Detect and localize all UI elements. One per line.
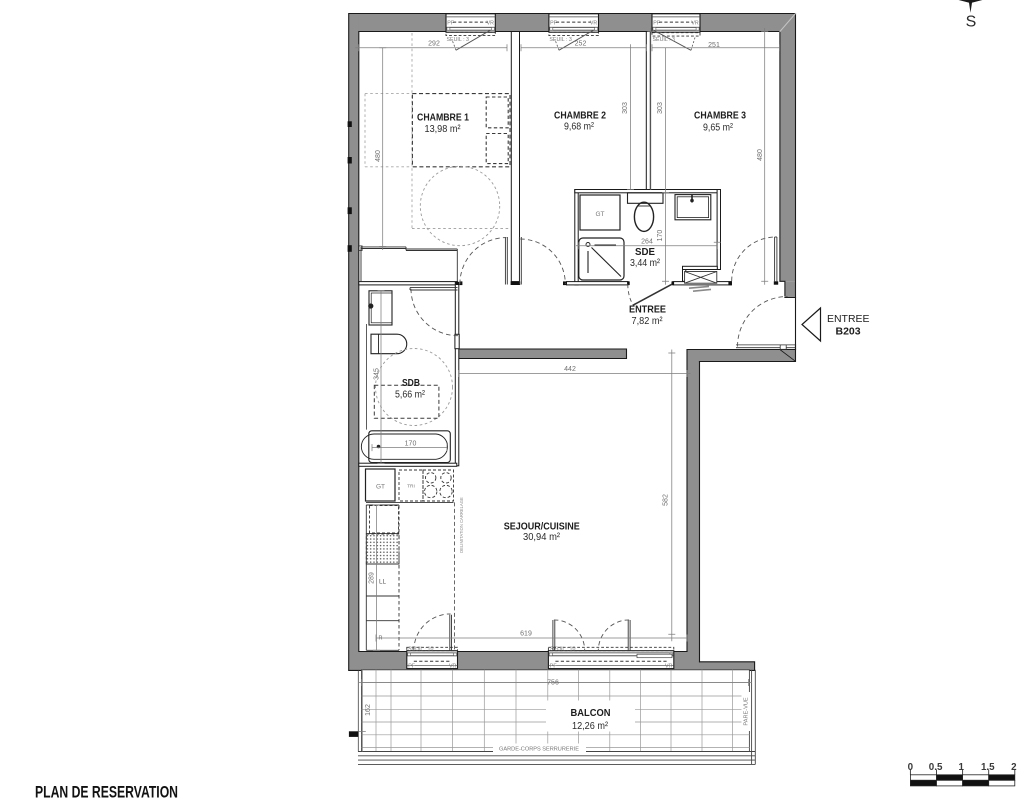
- svg-text:SEUIL : 10: SEUIL : 10: [408, 646, 433, 652]
- svg-text:PF: PF: [447, 20, 455, 26]
- svg-text:170: 170: [405, 440, 417, 447]
- svg-text:SDB: SDB: [402, 377, 420, 389]
- svg-text:BALCON: BALCON: [571, 707, 611, 719]
- svg-text:GARDE-CORPS SERRURERIE: GARDE-CORPS SERRURERIE: [499, 747, 579, 753]
- svg-text:VR: VR: [691, 20, 699, 26]
- svg-text:9,68 m²: 9,68 m²: [564, 121, 595, 132]
- svg-text:DELIMITATION CARRELAGE: DELIMITATION CARRELAGE: [459, 497, 464, 553]
- svg-text:303: 303: [657, 102, 664, 114]
- svg-text:PF: PF: [408, 664, 416, 670]
- svg-text:7,82 m²: 7,82 m²: [632, 316, 664, 327]
- svg-text:VR: VR: [665, 664, 673, 670]
- svg-text:SDE: SDE: [635, 246, 655, 258]
- svg-text:GT: GT: [595, 211, 604, 218]
- svg-text:CHAMBRE 2: CHAMBRE 2: [554, 110, 606, 122]
- svg-text:442: 442: [564, 366, 576, 373]
- svg-text:12,26 m²: 12,26 m²: [572, 721, 609, 732]
- svg-text:S: S: [966, 13, 977, 30]
- svg-text:345: 345: [373, 368, 380, 380]
- svg-text:B203: B203: [836, 326, 861, 338]
- svg-text:PF: PF: [550, 20, 558, 26]
- svg-text:289: 289: [369, 572, 376, 584]
- svg-text:SEUIL : 3: SEUIL : 3: [447, 37, 470, 43]
- svg-text:1.5: 1.5: [981, 762, 995, 773]
- svg-text:SEUIL : 3: SEUIL : 3: [653, 37, 676, 43]
- svg-text:VR: VR: [487, 20, 495, 26]
- svg-text:9,65 m²: 9,65 m²: [703, 123, 734, 134]
- svg-text:30,94 m²: 30,94 m²: [523, 532, 561, 543]
- svg-text:292: 292: [428, 41, 440, 48]
- svg-text:13,98 m²: 13,98 m²: [425, 124, 462, 135]
- svg-text:R: R: [379, 636, 383, 642]
- svg-text:619: 619: [520, 631, 532, 638]
- svg-text:0.5: 0.5: [929, 762, 943, 773]
- svg-text:303: 303: [622, 102, 629, 114]
- svg-text:SEJOUR/CUISINE: SEJOUR/CUISINE: [504, 520, 580, 532]
- svg-text:251: 251: [708, 42, 720, 49]
- svg-text:SEUIL : 10: SEUIL : 10: [550, 646, 575, 652]
- svg-text:582: 582: [663, 494, 670, 506]
- svg-text:GT: GT: [376, 484, 385, 491]
- svg-text:1: 1: [958, 762, 964, 773]
- svg-text:162: 162: [365, 704, 372, 716]
- svg-text:CHAMBRE 3: CHAMBRE 3: [694, 110, 746, 122]
- svg-text:PF: PF: [550, 664, 558, 670]
- svg-text:PLAN DE RESERVATION: PLAN DE RESERVATION: [35, 784, 178, 800]
- svg-text:ENTREE: ENTREE: [629, 304, 666, 316]
- svg-text:CHAMBRE 1: CHAMBRE 1: [417, 112, 469, 124]
- svg-text:PARE-VUE: PARE-VUE: [743, 697, 749, 725]
- svg-text:VR: VR: [590, 20, 598, 26]
- svg-text:756: 756: [547, 680, 559, 687]
- svg-text:SEUIL : 3: SEUIL : 3: [549, 37, 572, 43]
- svg-text:264: 264: [641, 238, 653, 245]
- svg-text:480: 480: [757, 149, 764, 161]
- svg-text:252: 252: [575, 41, 587, 48]
- svg-text:2: 2: [1011, 762, 1017, 773]
- svg-text:5,66 m²: 5,66 m²: [395, 390, 426, 401]
- svg-text:PF: PF: [653, 20, 661, 26]
- svg-text:LL: LL: [379, 579, 387, 586]
- svg-text:TRI: TRI: [407, 484, 415, 490]
- svg-text:480: 480: [375, 150, 382, 162]
- svg-text:170: 170: [657, 230, 664, 242]
- svg-text:ENTREE: ENTREE: [827, 313, 870, 325]
- svg-text:VR: VR: [449, 664, 457, 670]
- svg-text:3,44 m²: 3,44 m²: [630, 258, 661, 269]
